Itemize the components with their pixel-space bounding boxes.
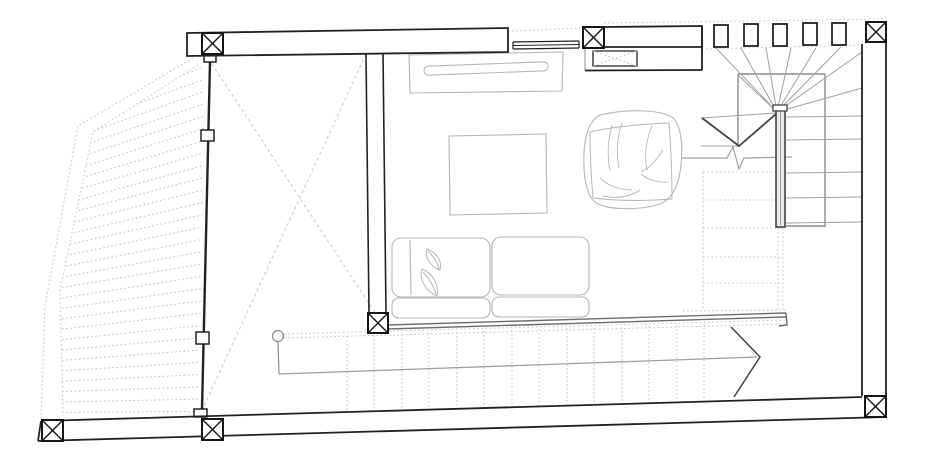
hidden-stair-flight	[683, 172, 786, 311]
deck-hatch	[41, 30, 204, 419]
column-marker	[583, 27, 604, 48]
coffee-table	[449, 134, 547, 215]
sofa-back-rail	[388, 313, 787, 329]
tv-console	[409, 52, 563, 93]
winder-stair	[683, 47, 862, 227]
column-marker	[865, 396, 886, 417]
perimeter-walls	[38, 26, 886, 441]
bean-bag-chair	[584, 111, 700, 209]
column-marker	[202, 419, 223, 440]
column-marker	[42, 420, 63, 441]
column-marker	[202, 33, 223, 54]
column-marker	[368, 313, 388, 333]
floor-plan-canvas	[0, 0, 937, 471]
bottom-stair	[273, 320, 787, 412]
structural-columns	[42, 22, 886, 441]
column-marker	[866, 22, 886, 42]
interior-wall	[366, 53, 386, 313]
floor-plan-page	[0, 0, 937, 471]
sofa	[392, 237, 589, 318]
